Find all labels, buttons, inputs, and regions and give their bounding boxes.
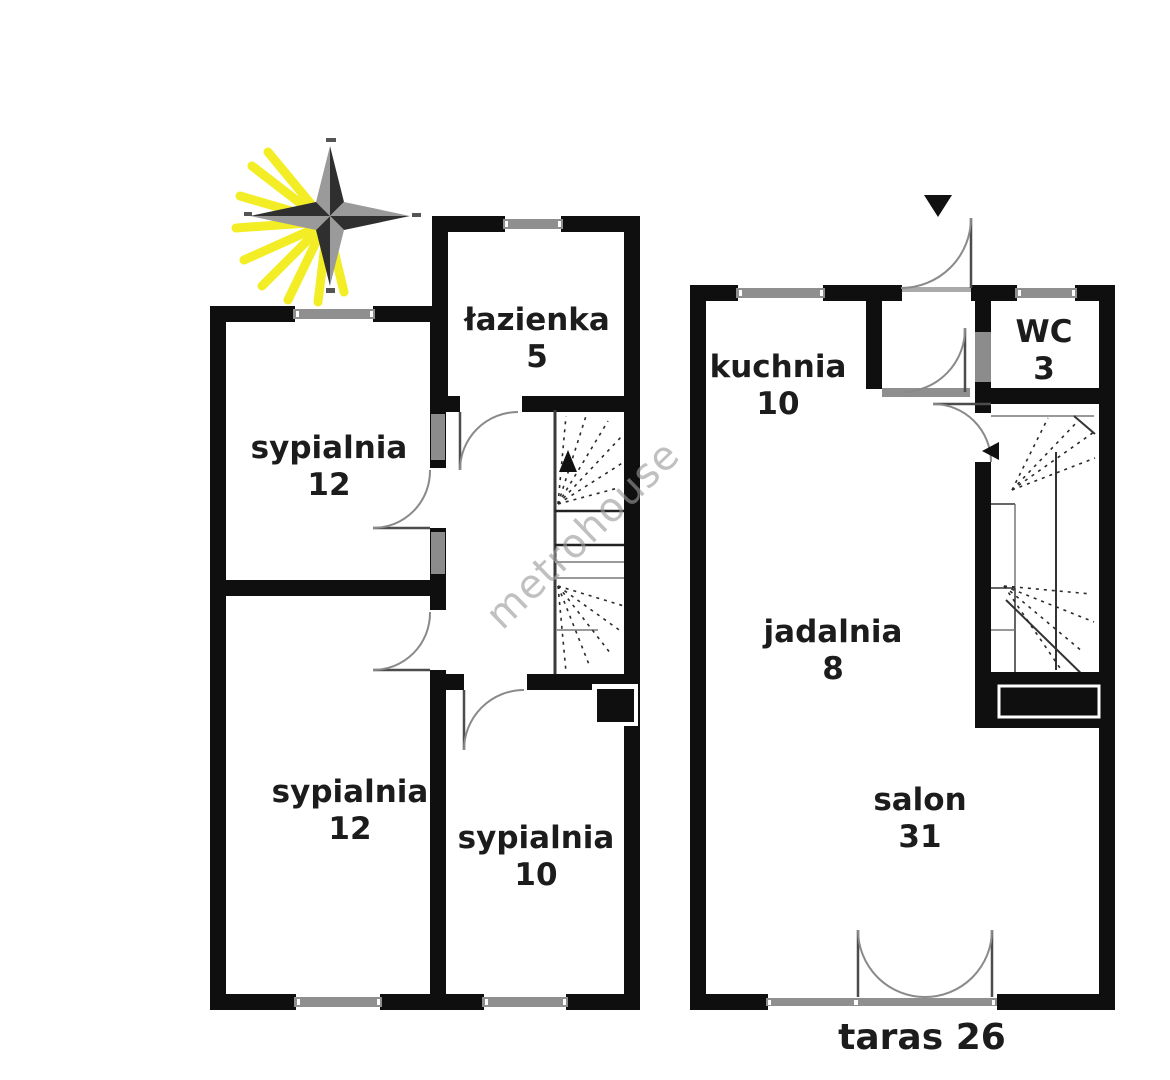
room-label-jadalnia: jadalnia 8 <box>733 614 933 688</box>
window <box>294 997 382 1007</box>
room-name: WC <box>944 314 1144 351</box>
room-area: 10 <box>678 386 878 423</box>
room-name: sypialnia <box>229 430 429 467</box>
door-arc <box>464 690 524 750</box>
room-label-taras: taras 26 <box>772 1018 1072 1058</box>
entrance-arrow-icon <box>924 195 952 217</box>
window <box>503 219 563 229</box>
compass-rose-icon <box>236 138 421 302</box>
door-arc <box>858 930 925 997</box>
floor-plan-page: łazienka 5 sypialnia 12 sypialnia 12 syp… <box>0 0 1170 1080</box>
window <box>736 288 825 298</box>
window <box>766 998 997 1006</box>
window <box>482 997 568 1007</box>
room-label-sypialnia-bottom: sypialnia 12 <box>250 774 450 848</box>
door-arc <box>925 930 992 997</box>
door-arc <box>901 218 971 288</box>
room-area: 26 <box>956 1017 1006 1058</box>
room-area: 5 <box>437 339 637 376</box>
room-label-kuchnia: kuchnia 10 <box>678 349 878 423</box>
window <box>293 309 375 319</box>
door-arc <box>460 412 518 470</box>
window <box>1015 288 1077 298</box>
room-label-sypialnia-10: sypialnia 10 <box>436 820 636 894</box>
room-name: sypialnia <box>436 820 636 857</box>
door-arc <box>373 612 430 670</box>
staircase-ground-floor <box>982 416 1095 686</box>
compass-star <box>250 146 410 286</box>
stairs-direction-arrow-icon <box>559 450 577 472</box>
room-name: jadalnia <box>733 614 933 651</box>
room-area: 8 <box>733 651 933 688</box>
chimney <box>592 684 638 726</box>
room-area: 31 <box>820 819 1020 856</box>
room-name: łazienka <box>437 302 637 339</box>
room-label-lazienka: łazienka 5 <box>437 302 637 376</box>
room-area: 10 <box>436 857 636 894</box>
room-name: kuchnia <box>678 349 878 386</box>
staircase-upper-floor <box>555 410 624 674</box>
chimney <box>975 672 1105 728</box>
room-name: taras <box>838 1017 943 1058</box>
room-area: 3 <box>944 351 1144 388</box>
french-doors <box>858 930 992 997</box>
room-label-salon: salon 31 <box>820 782 1020 856</box>
floor-plan-drawing <box>0 0 1170 1080</box>
room-area: 12 <box>229 467 429 504</box>
room-name: salon <box>820 782 1020 819</box>
room-area: 12 <box>250 811 450 848</box>
room-name: sypialnia <box>250 774 450 811</box>
room-label-wc: WC 3 <box>944 314 1144 388</box>
room-label-sypialnia-top: sypialnia 12 <box>229 430 429 504</box>
